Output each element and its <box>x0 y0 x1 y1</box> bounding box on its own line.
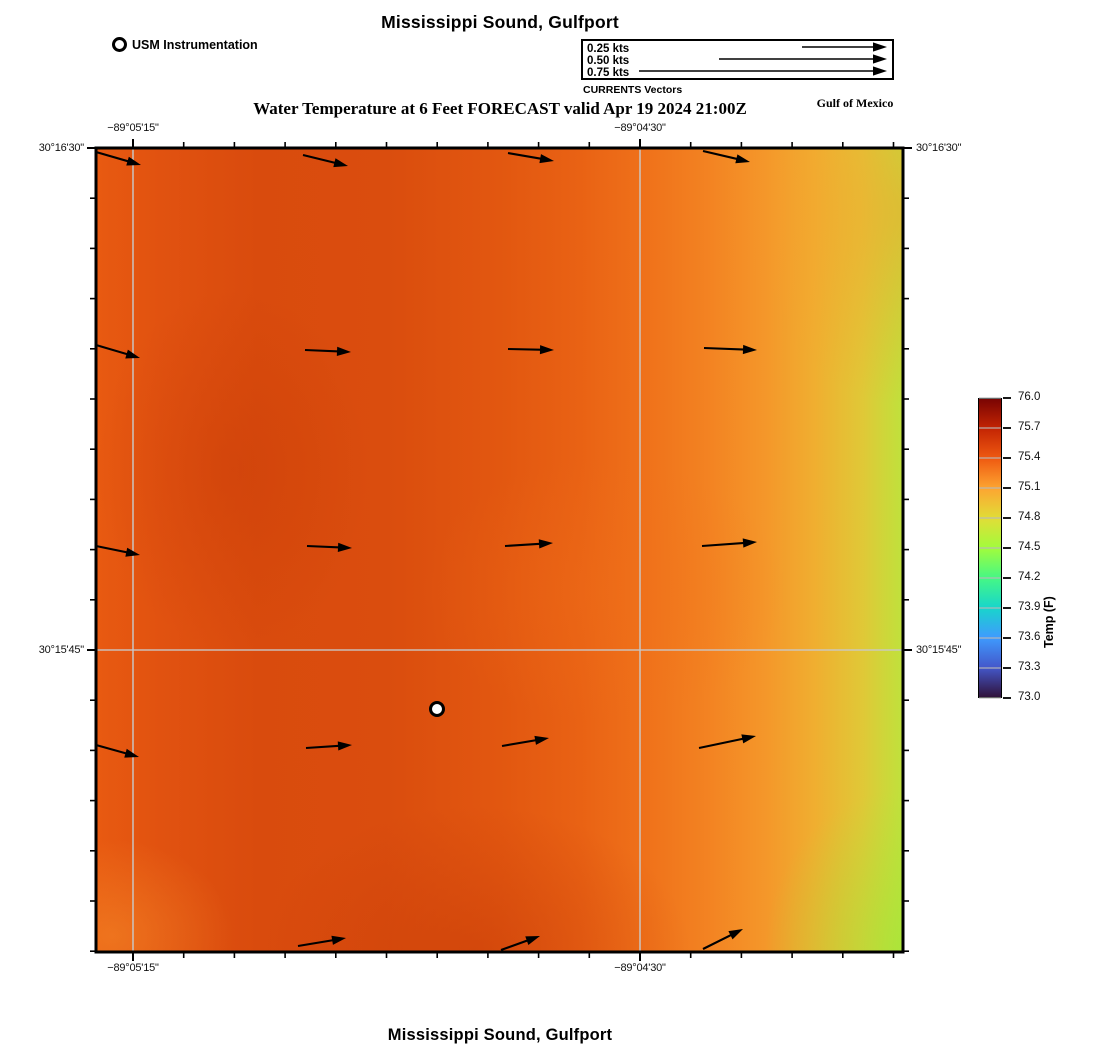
station-marker-icon <box>112 37 127 52</box>
colorbar-tick-label: 75.1 <box>1018 481 1040 493</box>
colorbar-tick-label: 74.2 <box>1018 571 1040 583</box>
station-legend: USM Instrumentation <box>112 37 258 52</box>
axis-tick-label: −89°05'15" <box>78 962 188 974</box>
colorbar-tick-label: 73.3 <box>1018 661 1040 673</box>
figure-title-bottom: Mississippi Sound, Gulfport <box>0 1026 1000 1045</box>
axis-tick-label: −89°04'30" <box>585 962 695 974</box>
colorbar <box>978 398 1002 698</box>
vector-legend-entry: 0.75 kts <box>587 67 629 80</box>
figure-title-top: Mississippi Sound, Gulfport <box>0 12 1000 33</box>
colorbar-tick-label: 73.6 <box>1018 631 1040 643</box>
current-vector-legend-box: 0.25 kts0.50 kts0.75 kts <box>581 39 894 80</box>
axis-tick-label: 30°16'30" <box>4 142 84 154</box>
colorbar-title: Temp (F) <box>1042 448 1056 648</box>
axis-tick-label: 30°15'45" <box>916 644 961 656</box>
axis-tick-label: 30°16'30" <box>916 142 961 154</box>
colorbar-tick-label: 75.7 <box>1018 421 1040 433</box>
colorbar-tick-label: 73.0 <box>1018 691 1040 703</box>
colorbar-tick-label: 75.4 <box>1018 451 1040 463</box>
axis-tick-label: 30°15'45" <box>4 644 84 656</box>
temperature-heatmap <box>96 148 903 952</box>
figure-canvas: Mississippi Sound, Gulfport USM Instrume… <box>0 0 1100 1050</box>
colorbar-tick-label: 76.0 <box>1018 391 1040 403</box>
station-legend-label: USM Instrumentation <box>132 38 258 52</box>
colorbar-tick-label: 73.9 <box>1018 601 1040 613</box>
region-label: Gulf of Mexico <box>805 96 905 111</box>
current-vector-legend-caption: CURRENTS Vectors <box>583 84 682 96</box>
colorbar-tick-label: 74.8 <box>1018 511 1040 523</box>
axis-tick-label: −89°04'30" <box>585 122 695 134</box>
colorbar-tick-label: 74.5 <box>1018 541 1040 553</box>
axis-tick-label: −89°05'15" <box>78 122 188 134</box>
